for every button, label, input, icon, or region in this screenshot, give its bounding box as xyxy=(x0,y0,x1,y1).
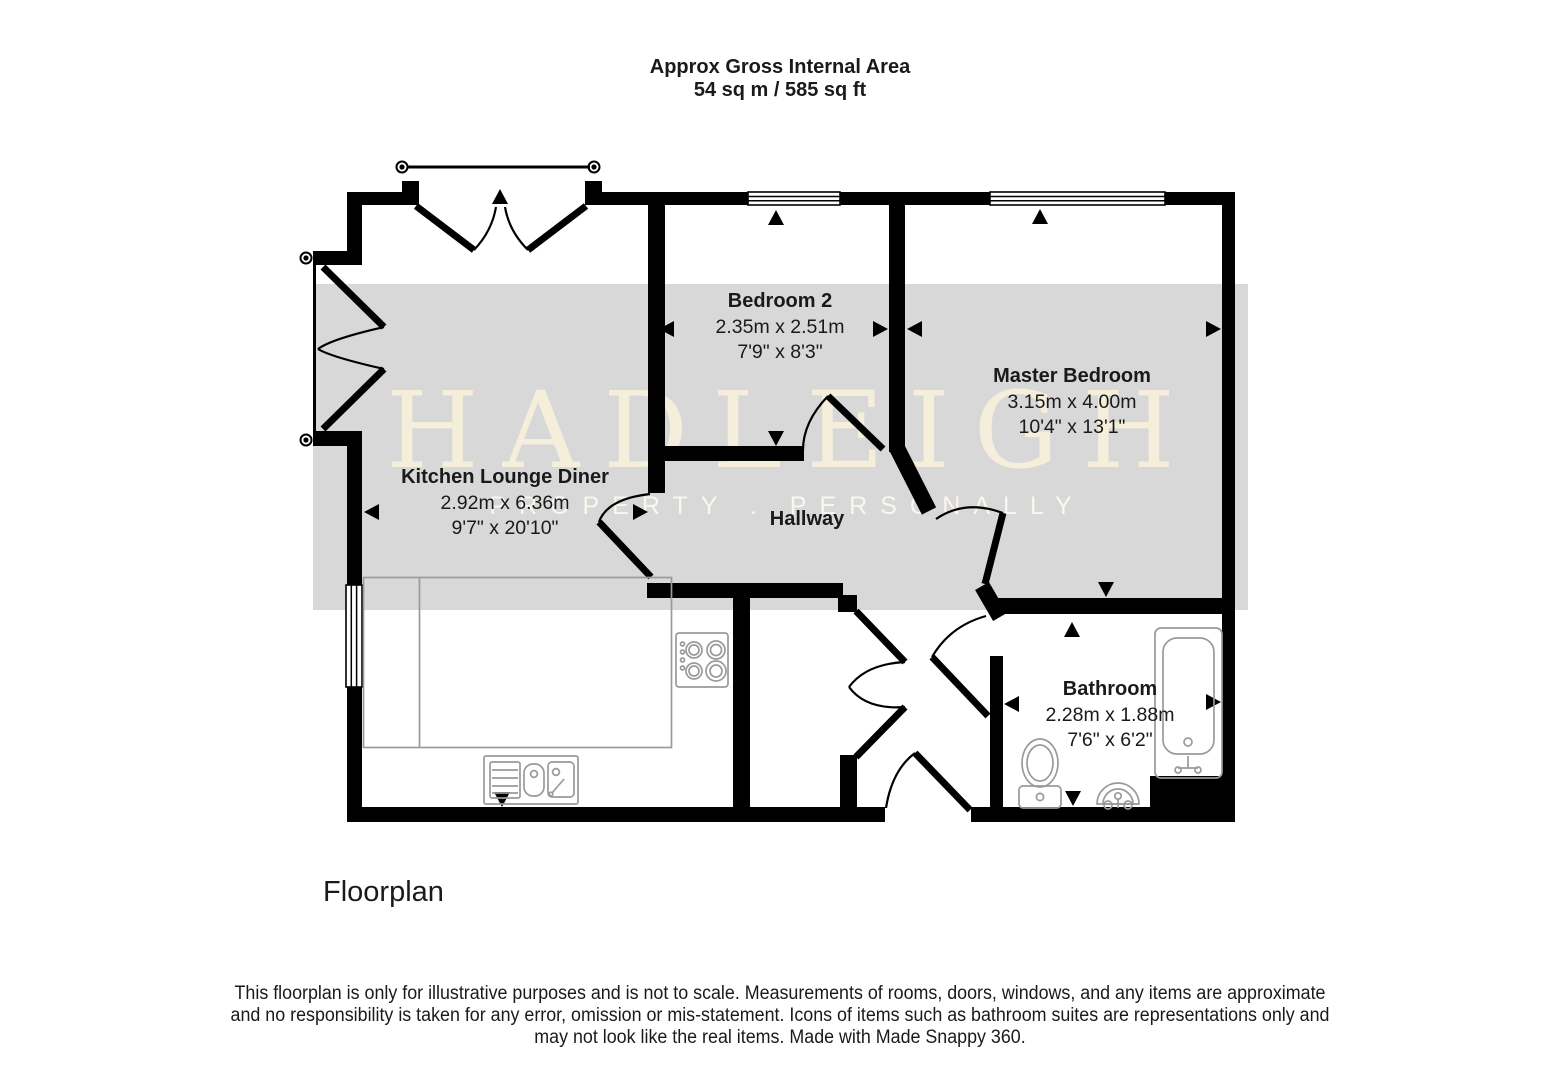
room-label-master: Master Bedroom 3.15m x 4.00m 10'4" x 13'… xyxy=(993,364,1151,441)
disclaimer-line: may not look like the real items. Made w… xyxy=(47,1027,1513,1049)
disclaimer-line: and no responsibility is taken for any e… xyxy=(47,1005,1513,1027)
plan-label: Floorplan xyxy=(323,876,444,909)
arrow-up-icon xyxy=(1032,209,1048,224)
arrow-down-icon xyxy=(1098,582,1114,597)
scroll-icon xyxy=(397,162,408,173)
arrow-left-icon xyxy=(907,321,922,337)
floorplan-drawing xyxy=(0,0,1560,1080)
arrow-down-icon xyxy=(1065,791,1081,806)
room-label-bedroom2: Bedroom 2 2.35m x 2.51m 7'9" x 8'3" xyxy=(716,289,845,366)
room-dim-metric: 2.28m x 1.88m xyxy=(1046,703,1175,729)
basin-icon xyxy=(1097,783,1139,809)
room-name: Kitchen Lounge Diner xyxy=(401,465,609,491)
scroll-icon xyxy=(589,162,600,173)
kitchen-counter xyxy=(364,578,672,748)
arrow-left-icon xyxy=(1004,696,1019,712)
scroll-icon xyxy=(301,435,312,446)
room-dim-metric: 2.35m x 2.51m xyxy=(716,315,845,341)
room-dim-imperial: 9'7" x 20'10" xyxy=(401,516,609,542)
arrow-right-icon xyxy=(633,504,648,520)
room-name: Master Bedroom xyxy=(993,364,1151,390)
room-name: Bedroom 2 xyxy=(716,289,845,315)
arrow-up-icon xyxy=(492,189,508,204)
room-dim-metric: 2.92m x 6.36m xyxy=(401,491,609,517)
arrow-right-icon xyxy=(873,321,888,337)
arrow-up-icon xyxy=(768,210,784,225)
disclaimer: This floorplan is only for illustrative … xyxy=(0,983,1560,1049)
room-label-hallway: Hallway xyxy=(770,507,844,533)
room-dim-imperial: 10'4" x 13'1" xyxy=(993,415,1151,441)
hob-icon xyxy=(676,633,728,687)
room-label-kitchen: Kitchen Lounge Diner 2.92m x 6.36m 9'7" … xyxy=(401,465,609,542)
arrow-up-icon xyxy=(1064,622,1080,637)
scroll-icon xyxy=(301,253,312,264)
floorplan-page: Approx Gross Internal Area 54 sq m / 585… xyxy=(0,0,1560,1080)
room-dim-metric: 3.15m x 4.00m xyxy=(993,390,1151,416)
arrow-right-icon xyxy=(1206,321,1221,337)
disclaimer-line: This floorplan is only for illustrative … xyxy=(47,983,1513,1005)
room-name: Bathroom xyxy=(1046,677,1175,703)
room-name: Hallway xyxy=(770,507,844,533)
arrow-down-icon xyxy=(768,431,784,446)
room-label-bathroom: Bathroom 2.28m x 1.88m 7'6" x 6'2" xyxy=(1046,677,1175,754)
arrow-left-icon xyxy=(364,504,379,520)
room-dim-imperial: 7'9" x 8'3" xyxy=(716,340,845,366)
room-dim-imperial: 7'6" x 6'2" xyxy=(1046,728,1175,754)
